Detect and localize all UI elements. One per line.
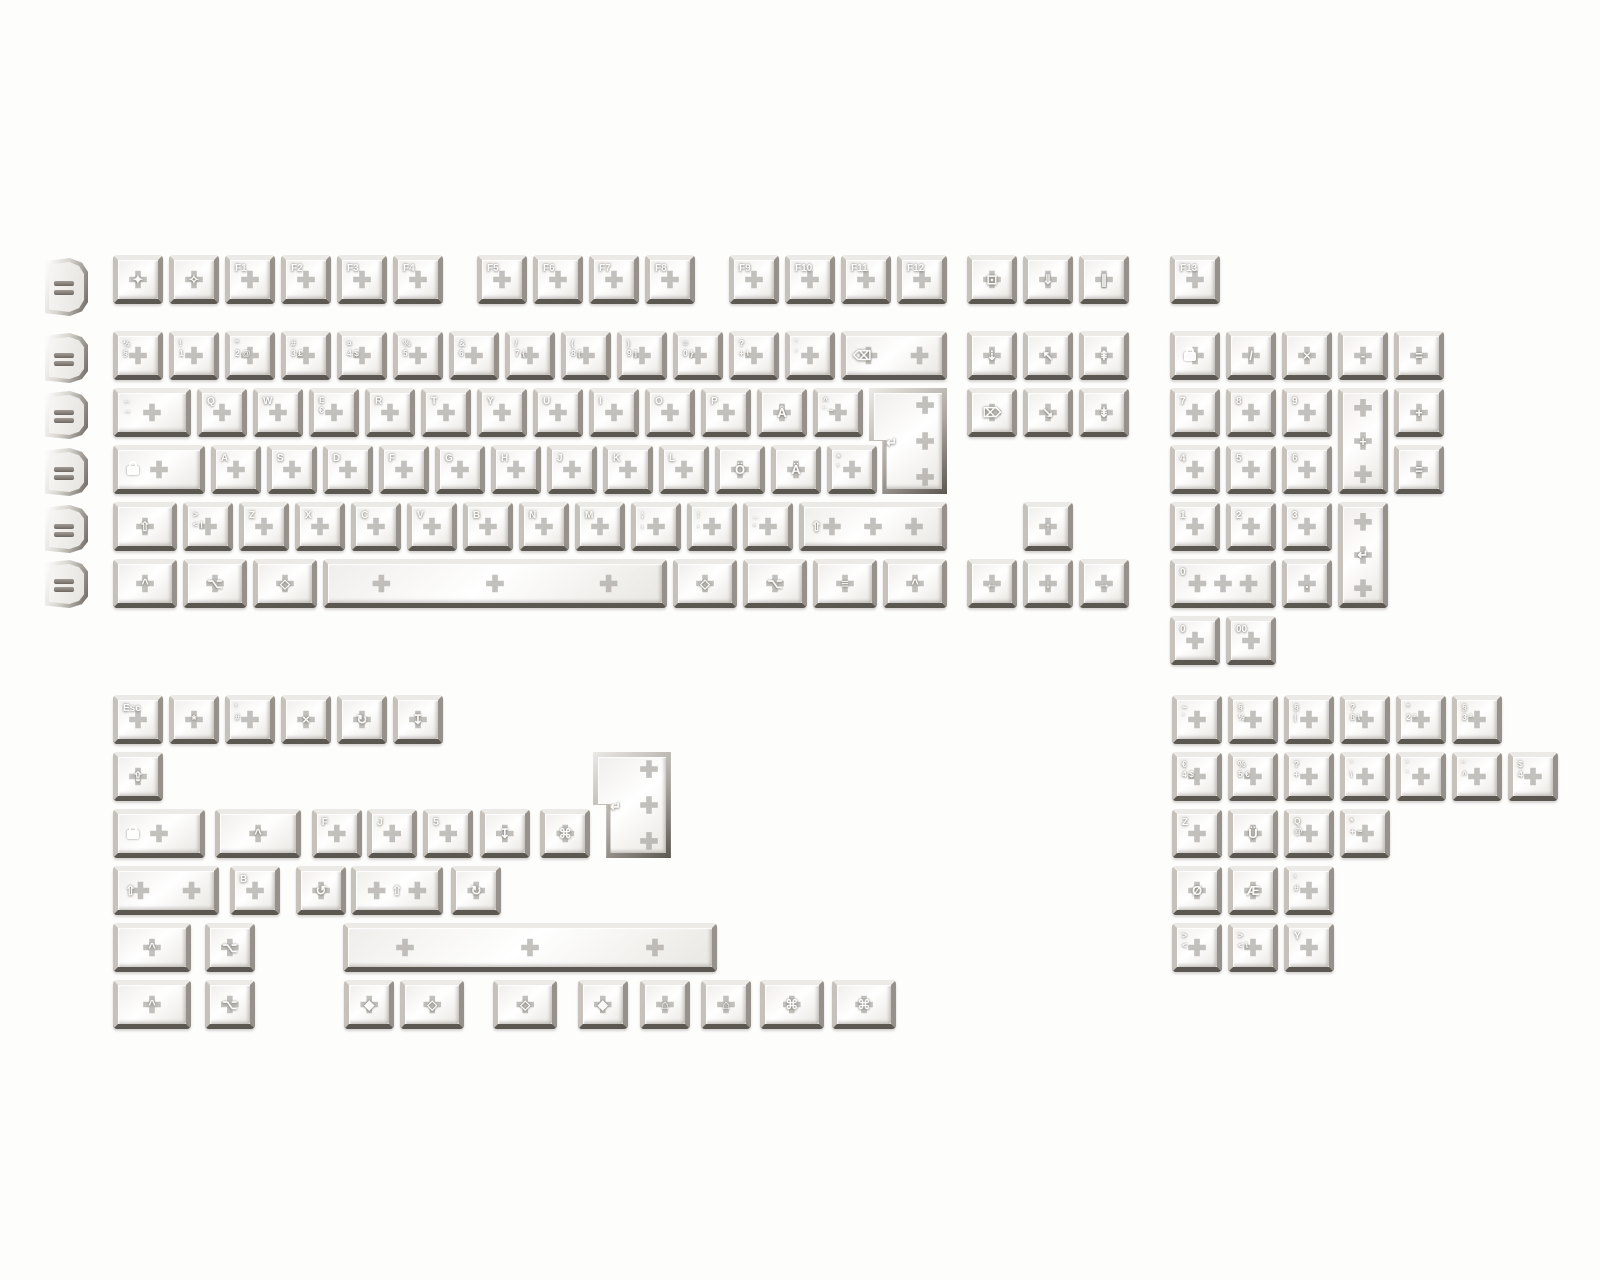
stem-cross (1297, 403, 1317, 423)
key-caps-lock-alt (113, 809, 205, 858)
stem-cross (674, 460, 694, 480)
key-7: / 7 { (505, 331, 555, 380)
key-backspace: ⌫ (841, 331, 947, 380)
key-arrow-left: ← (967, 559, 1017, 608)
key-4-alt2: $ 4 (1508, 752, 1558, 801)
key-9: ) 9 ] (617, 331, 667, 380)
stem-cross (562, 460, 582, 480)
stem-cross (1038, 270, 1058, 290)
key-cycle-cw-2: ↻ (451, 866, 501, 915)
stem-cross (1411, 710, 1431, 730)
key-p: P (701, 388, 751, 437)
stem-cross (240, 270, 260, 290)
key-ctrl-wide: ^ (215, 809, 301, 858)
key-np-5: 5 (1226, 445, 1276, 494)
stem-cross (492, 270, 512, 290)
stem-cross (915, 431, 935, 451)
key-comma: ; , (631, 502, 681, 551)
key-eszett: ? ß \ (1340, 695, 1390, 744)
key-adiaeresis: Ä (771, 445, 821, 494)
key-n: N (519, 502, 569, 551)
key-scroll-lock: ⇓ (1023, 255, 1073, 304)
stem-cross (915, 467, 935, 487)
key-np-2: 2 (1226, 502, 1276, 551)
stem-cross (515, 995, 535, 1015)
stem-cross (184, 270, 204, 290)
stem-cross (645, 938, 665, 958)
key-meta-1ua: ◆ (344, 980, 394, 1029)
key-eject: ↧ (393, 695, 443, 744)
stem-cross (765, 574, 785, 594)
key-f: F (379, 445, 429, 494)
key-e: E € (309, 388, 359, 437)
stem-cross (520, 938, 540, 958)
key-hash: ' # (225, 695, 275, 744)
key-hash-alt: ' # (1284, 866, 1334, 915)
key-f2: F2 (281, 255, 331, 304)
stem-cross (149, 460, 169, 480)
stem-cross (407, 881, 427, 901)
key-acute: ` ´ (785, 331, 835, 380)
stem-cross (854, 995, 874, 1015)
key-fn: ⌥ (743, 559, 807, 608)
stem-cross (702, 517, 722, 537)
stem-cross (1094, 403, 1114, 423)
stem-cross (1185, 460, 1205, 480)
lock-icon (1184, 352, 1196, 361)
key-b-alt: B (230, 866, 280, 915)
stem-cross (1297, 346, 1317, 366)
stem-cross (758, 517, 778, 537)
key-alt-125a: ◇ (400, 980, 464, 1029)
stem-cross (1241, 346, 1261, 366)
key-q-alt: Q @ (1284, 809, 1334, 858)
key-menu: ≡ (813, 559, 877, 608)
stem-cross (1355, 824, 1375, 844)
key-u: U (533, 388, 583, 437)
stem-cross (660, 270, 680, 290)
stem-cross (366, 517, 386, 537)
stem-cross (593, 995, 613, 1015)
stem-cross (576, 346, 596, 366)
stem-cross (1355, 710, 1375, 730)
stem-cross (142, 995, 162, 1015)
key-t: T (421, 388, 471, 437)
key-i: I (589, 388, 639, 437)
key-f12: F12 (897, 255, 947, 304)
key-alt-right: ◇ (673, 559, 737, 608)
stem-cross (492, 403, 512, 423)
stem-cross (1409, 346, 1429, 366)
stem-cross (772, 403, 792, 423)
stem-cross (915, 395, 935, 415)
key-grave-alt: ´ ` (1396, 752, 1446, 801)
stem-cross (1038, 403, 1058, 423)
lock-icon (127, 466, 139, 475)
stem-cross (1187, 574, 1207, 594)
key-insert: ⇣ (967, 331, 1017, 380)
key-delete: ⌦ (967, 388, 1017, 437)
key-ctrl-right: ^ (883, 559, 947, 608)
key-os-home-a: ⌂ (640, 980, 690, 1029)
stem-cross (135, 574, 155, 594)
key-minus: _ - (743, 502, 793, 551)
key-cycle-cw: ↻ (337, 695, 387, 744)
key-np-multiply: × (1282, 331, 1332, 380)
key-circumflex-alt: ¨ ^ (1452, 752, 1502, 801)
stem-cross (408, 710, 428, 730)
stem-cross (478, 517, 498, 537)
stem-cross (905, 574, 925, 594)
key-f3: F3 (337, 255, 387, 304)
key-arrow-up: ↑ (1023, 502, 1073, 551)
key-eject-2: ↧ (480, 809, 530, 858)
stem-cross (324, 403, 344, 423)
keycap-profile-6 (45, 560, 88, 608)
key-np-equals-alt: = (1394, 445, 1444, 494)
stem-cross (327, 824, 347, 844)
stem-cross (1353, 346, 1373, 366)
key-udiaeresis: Ü (1228, 809, 1278, 858)
stem-cross (394, 460, 414, 480)
stem-cross (786, 460, 806, 480)
stem-cross (1241, 631, 1261, 651)
key-s: S (267, 445, 317, 494)
stem-cross (1299, 710, 1319, 730)
stem-cross (1299, 824, 1319, 844)
key-f10: F10 (785, 255, 835, 304)
key-ctrl-15b: ^ (113, 980, 191, 1029)
key-np-8: 8 (1226, 388, 1276, 437)
key-np-divide: / (1226, 331, 1276, 380)
key-x: X (295, 502, 345, 551)
key-d: D (323, 445, 373, 494)
key-np-equals: = (1394, 331, 1444, 380)
lock-icon (127, 830, 139, 839)
key-y: Y (477, 388, 527, 437)
stem-cross (835, 574, 855, 594)
stem-cross (716, 403, 736, 423)
stem-cross (1353, 398, 1373, 418)
key-np-00: 00 (1226, 616, 1276, 665)
stem-cross (438, 824, 458, 844)
key-l: L (659, 445, 709, 494)
key-w: W (253, 388, 303, 437)
stem-cross (842, 460, 862, 480)
key-arrow-right: → (1079, 559, 1129, 608)
key-2: " 2 @ (225, 331, 275, 380)
stem-cross (296, 270, 316, 290)
stem-cross (352, 346, 372, 366)
stem-cross (296, 710, 316, 730)
stem-cross (352, 270, 372, 290)
stem-cross (982, 403, 1002, 423)
stem-cross (268, 403, 288, 423)
key-5-homing: 5 (423, 809, 473, 858)
stem-cross (1299, 938, 1319, 958)
stem-cross (555, 824, 575, 844)
stem-cross (632, 346, 652, 366)
stem-cross (495, 824, 515, 844)
stem-cross (639, 759, 659, 779)
key-c: C (351, 502, 401, 551)
key-np-3: 3 (1282, 502, 1332, 551)
key-b: B (463, 502, 513, 551)
stem-cross (245, 881, 265, 901)
stem-cross (1523, 767, 1543, 787)
key-iso-enter-alt: ↵ (593, 752, 671, 858)
key-f-homing: F (312, 809, 362, 858)
stem-cross (466, 881, 486, 901)
stem-cross (359, 995, 379, 1015)
stem-cross (1187, 824, 1207, 844)
key-period: : . (687, 502, 737, 551)
key-f13: F13 (1170, 255, 1220, 304)
stem-cross (590, 517, 610, 537)
key-np-enter: ↵ (1338, 502, 1388, 608)
keycap-profile-5 (45, 505, 88, 553)
key-g: G (435, 445, 485, 494)
key-caps-arrow: ⇪ (113, 752, 163, 801)
stem-cross (296, 346, 316, 366)
key-np-6: 6 (1282, 445, 1332, 494)
key-tilde-acute: ~ ´ (1172, 695, 1222, 744)
key-shift-2u: ⇧ (113, 866, 219, 915)
key-f6: F6 (533, 255, 583, 304)
key-z: Z (239, 502, 289, 551)
key-ctrl-left: ^ (113, 559, 177, 608)
stem-cross (282, 460, 302, 480)
key-half-section: ½ § (113, 331, 163, 380)
key-print-screen: ⊡ (967, 255, 1017, 304)
stem-cross (422, 995, 442, 1015)
stem-cross (220, 938, 240, 958)
stem-cross (506, 460, 526, 480)
stem-cross (205, 574, 225, 594)
stem-cross (184, 710, 204, 730)
stem-cross (220, 995, 240, 1015)
stem-cross (1299, 767, 1319, 787)
stem-cross (1185, 403, 1205, 423)
stem-cross (1297, 460, 1317, 480)
stem-cross (604, 403, 624, 423)
stem-cross (730, 460, 750, 480)
key-3-de: § 3 ³ (1452, 695, 1502, 744)
key-alt-left: ◇ (253, 559, 317, 608)
key-opt-1ub: ⌥ (205, 980, 255, 1029)
stem-cross (422, 517, 442, 537)
stem-cross (1094, 346, 1114, 366)
keycap-set-photo: ✦✧F1F2F3F4F5F6F7F8F9F10F11F12½ §! 1" 2 @… (0, 0, 1600, 1280)
key-a: A (211, 445, 261, 494)
key-np-4: 4 (1170, 445, 1220, 494)
stem-cross (1409, 403, 1429, 423)
key-caps-lock (113, 445, 205, 494)
stem-cross (1038, 346, 1058, 366)
stem-cross (395, 938, 415, 958)
key-meta-1ub: ◆ (578, 980, 628, 1029)
stem-cross (1038, 574, 1058, 594)
key-f7: F7 (589, 255, 639, 304)
stem-cross (744, 346, 764, 366)
key-os-home-b: ⌂ (701, 980, 751, 1029)
stem-cross (904, 517, 924, 537)
key-f4: F4 (393, 255, 443, 304)
key-esc-alt: ✧ (169, 255, 219, 304)
stem-cross (604, 270, 624, 290)
stem-cross (1185, 631, 1205, 651)
stem-cross (1409, 460, 1429, 480)
stem-cross (1243, 710, 1263, 730)
stem-cross (688, 346, 708, 366)
key-1: ! 1 (169, 331, 219, 380)
key-backslash-alt: ` \ (1340, 752, 1390, 801)
key-pause: ∥ (1079, 255, 1129, 304)
stem-cross (142, 938, 162, 958)
stem-cross (1038, 517, 1058, 537)
stem-cross (1353, 464, 1373, 484)
stem-cross (436, 403, 456, 423)
keycap-profile-4 (45, 448, 88, 496)
stem-cross (371, 574, 391, 594)
stem-cross (240, 710, 260, 730)
key-4-alt: € 4 $ (1172, 752, 1222, 801)
stem-cross (128, 346, 148, 366)
stem-cross (408, 270, 428, 290)
key-np-0-1u: 0 (1170, 616, 1220, 665)
key-z-alt: Z (1172, 809, 1222, 858)
key-oslash: Ø (1172, 866, 1222, 915)
stem-cross (1185, 517, 1205, 537)
key-multiply-alt: × (281, 695, 331, 744)
stem-cross (534, 517, 554, 537)
key-arrow-down: ↓ (1023, 559, 1073, 608)
stem-cross (1213, 574, 1233, 594)
key-ae: Æ (1228, 866, 1278, 915)
stem-cross (128, 710, 148, 730)
stem-cross (130, 881, 150, 901)
stem-cross (142, 403, 162, 423)
key-command-1u: ⌘ (540, 809, 590, 858)
key-command-125a: ⌘ (760, 980, 824, 1029)
key-plus-asterisk: * + ~ (1340, 809, 1390, 858)
key-esc-text: Esc (113, 695, 163, 744)
stem-cross (800, 270, 820, 290)
key-aring: Å (757, 388, 807, 437)
stem-cross (198, 517, 218, 537)
stem-cross (464, 346, 484, 366)
key-o: O (645, 388, 695, 437)
key-f5: F5 (477, 255, 527, 304)
stem-cross (639, 795, 659, 815)
keycap-profile-1 (45, 258, 88, 316)
key-np-plus: + (1338, 388, 1388, 494)
keycap-profile-3 (45, 391, 88, 439)
key-y-alt: Y (1284, 923, 1334, 972)
stem-cross (1187, 881, 1207, 901)
key-esc: ✦ (113, 255, 163, 304)
key-q: Q (197, 388, 247, 437)
keycap-profile-2 (45, 333, 88, 383)
key-plus-alt: ? + (1284, 752, 1334, 801)
stem-cross (128, 767, 148, 787)
key-f1: F1 (225, 255, 275, 304)
stem-cross (135, 517, 155, 537)
stem-cross (182, 881, 202, 901)
stem-cross (149, 824, 169, 844)
key-win-left: ⌥ (183, 559, 247, 608)
key-np-plus-1u: + (1394, 388, 1444, 437)
key-odiaeresis: Ö (715, 445, 765, 494)
stem-cross (800, 346, 820, 366)
key-diaeresis: ^ ¨ ~ (813, 388, 863, 437)
key-2-de: " 2 ² (1396, 695, 1446, 744)
stem-cross (1094, 270, 1114, 290)
stem-cross (1411, 767, 1431, 787)
stem-cross (275, 574, 295, 594)
stem-cross (450, 460, 470, 480)
key-less-greater: > < | (183, 502, 233, 551)
stem-cross (655, 995, 675, 1015)
key-np-7: 7 (1170, 388, 1220, 437)
stem-cross (982, 574, 1002, 594)
stem-cross (912, 270, 932, 290)
key-3: # 3 £ (281, 331, 331, 380)
key-f11: F11 (841, 255, 891, 304)
key-spacebar-7u (343, 923, 718, 972)
stem-cross (310, 517, 330, 537)
key-j: J (547, 445, 597, 494)
key-k: K (603, 445, 653, 494)
key-0: = 0 } (673, 331, 723, 380)
stem-cross (910, 346, 930, 366)
stem-cross (1187, 710, 1207, 730)
key-f8: F8 (645, 255, 695, 304)
key-page-up: ⇞ (1079, 331, 1129, 380)
key-iso-angle-bs: > < \ (1228, 923, 1278, 972)
key-page-down: ⇟ (1079, 388, 1129, 437)
stem-cross (660, 403, 680, 423)
stem-cross (1297, 574, 1317, 594)
stem-cross (782, 995, 802, 1015)
stem-cross (646, 517, 666, 537)
stem-cross (212, 403, 232, 423)
stem-cross (380, 403, 400, 423)
key-cycle-ccw: ↺ (296, 866, 346, 915)
stem-cross (695, 574, 715, 594)
stem-cross (338, 460, 358, 480)
key-v: V (407, 502, 457, 551)
stem-cross (382, 824, 402, 844)
key-j-homing: J (367, 809, 417, 858)
stem-cross (248, 824, 268, 844)
stem-cross (485, 574, 505, 594)
stem-cross (1187, 767, 1207, 787)
stem-cross (352, 710, 372, 730)
key-np-9: 9 (1282, 388, 1332, 437)
key-apostrophe: * ' (827, 445, 877, 494)
stem-cross (822, 517, 842, 537)
key-section-half: § ½ (1228, 695, 1278, 744)
key-8: ( 8 [ (561, 331, 611, 380)
key-shift-left: ⇧ (113, 502, 177, 551)
stem-cross (1243, 767, 1263, 787)
stem-cross (1243, 824, 1263, 844)
stem-cross (618, 460, 638, 480)
key-4: ¤ 4 $ (337, 331, 387, 380)
stem-cross (858, 346, 878, 366)
stem-cross (639, 831, 659, 851)
